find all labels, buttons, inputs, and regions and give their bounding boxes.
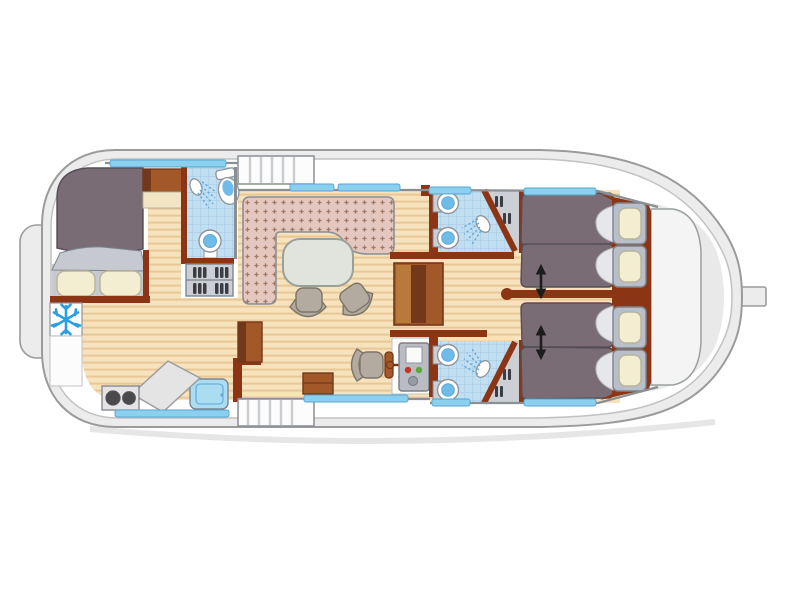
console-knob xyxy=(409,377,418,386)
duvet xyxy=(57,168,143,254)
red-button xyxy=(405,367,411,373)
window xyxy=(524,188,596,195)
bathroom-wall xyxy=(181,258,234,264)
sink-icon xyxy=(433,345,459,366)
shelf-unit xyxy=(186,264,233,296)
sink-icon xyxy=(433,193,459,214)
bathroom-wall xyxy=(234,167,237,259)
window xyxy=(110,160,226,167)
bow-deck xyxy=(651,209,701,385)
salon-table xyxy=(283,239,353,286)
window xyxy=(524,399,596,406)
sink-icon xyxy=(433,228,459,249)
control-console xyxy=(399,343,429,391)
bed-side-rail xyxy=(143,250,149,297)
cabinet xyxy=(238,322,262,362)
aft-wardrobe xyxy=(143,169,185,208)
stove-icon xyxy=(102,386,139,410)
green-button xyxy=(416,367,422,373)
wardrobe xyxy=(394,263,443,325)
fridge xyxy=(50,303,82,386)
helm-seat xyxy=(352,349,384,381)
window xyxy=(115,410,229,417)
window xyxy=(304,395,408,402)
bathroom-wall xyxy=(181,164,187,264)
bathroom-bottom xyxy=(433,340,526,403)
sink-icon xyxy=(433,380,459,401)
aft-corridor-floor xyxy=(148,207,181,304)
window xyxy=(432,399,470,406)
window xyxy=(338,184,400,191)
companionway-stairs-top xyxy=(238,156,314,184)
galley-cabinet xyxy=(50,336,82,386)
aft-double-bed xyxy=(50,168,150,303)
bathroom-top xyxy=(433,190,526,253)
bed-foot-rail xyxy=(50,296,150,303)
companionway-stairs-bottom xyxy=(238,399,314,426)
pillow xyxy=(57,271,95,296)
instrument-screen xyxy=(406,347,422,363)
aft-bathroom xyxy=(181,164,241,264)
floorplan-canvas xyxy=(0,0,800,600)
houseboat-floorplan xyxy=(0,0,800,600)
step-chest xyxy=(303,373,333,394)
dresser-top xyxy=(143,192,185,208)
window xyxy=(429,187,471,194)
window xyxy=(290,184,334,191)
pillow xyxy=(100,271,141,296)
